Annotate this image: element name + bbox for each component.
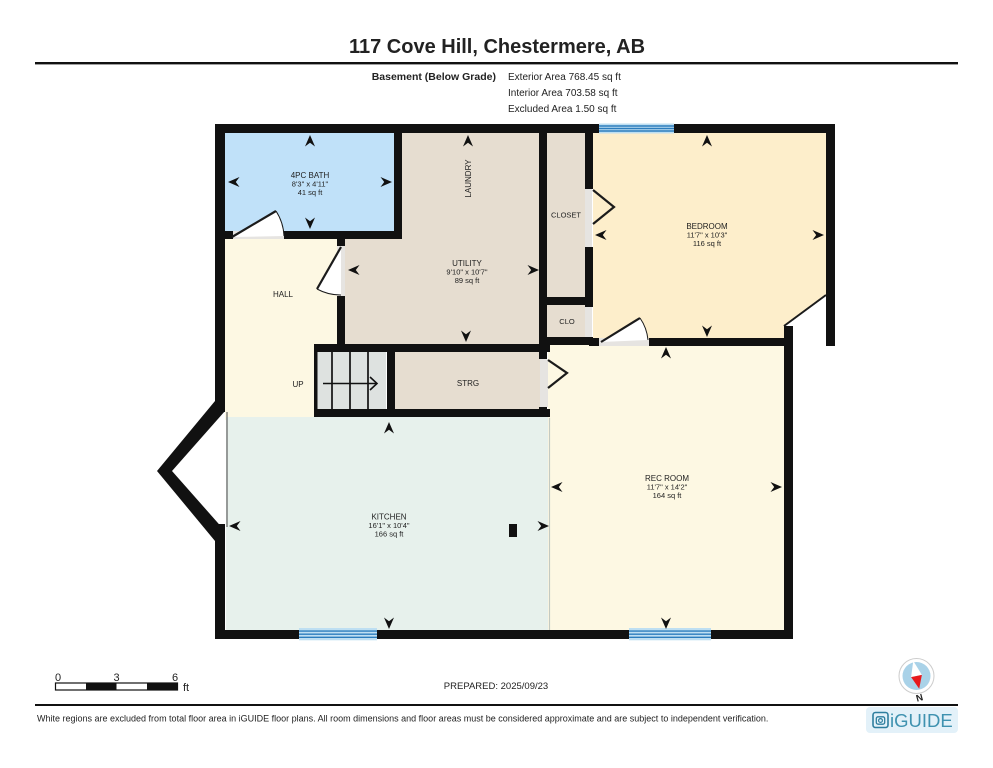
svg-text:116 sq ft: 116 sq ft [693, 239, 722, 248]
svg-text:White regions are excluded fro: White regions are excluded from total fl… [37, 714, 768, 724]
svg-text:Basement (Below Grade): Basement (Below Grade) [372, 71, 496, 83]
svg-text:164 sq ft: 164 sq ft [653, 491, 683, 500]
svg-text:STRG: STRG [457, 379, 479, 388]
svg-text:UP: UP [292, 380, 303, 389]
svg-text:CLOSET: CLOSET [551, 211, 581, 220]
svg-text:0: 0 [55, 672, 61, 684]
svg-text:41 sq ft: 41 sq ft [298, 188, 324, 197]
svg-text:ft: ft [183, 682, 189, 694]
svg-text:Excluded Area 1.50 sq ft: Excluded Area 1.50 sq ft [508, 104, 617, 115]
svg-text:89 sq ft: 89 sq ft [455, 276, 481, 285]
svg-text:3: 3 [113, 672, 119, 684]
svg-text:LAUNDRY: LAUNDRY [464, 159, 473, 198]
svg-text:166 sq ft: 166 sq ft [375, 530, 405, 539]
svg-text:6: 6 [172, 672, 178, 684]
svg-text:117 Cove Hill, Chestermere, AB: 117 Cove Hill, Chestermere, AB [349, 36, 645, 58]
svg-text:CLO: CLO [559, 317, 575, 326]
svg-text:iGUIDE: iGUIDE [890, 710, 953, 731]
svg-text:Exterior Area 768.45 sq ft: Exterior Area 768.45 sq ft [508, 72, 621, 83]
svg-text:Interior Area 703.58 sq ft: Interior Area 703.58 sq ft [508, 88, 618, 99]
svg-text:HALL: HALL [273, 290, 294, 299]
svg-text:PREPARED: 2025/09/23: PREPARED: 2025/09/23 [444, 681, 548, 692]
